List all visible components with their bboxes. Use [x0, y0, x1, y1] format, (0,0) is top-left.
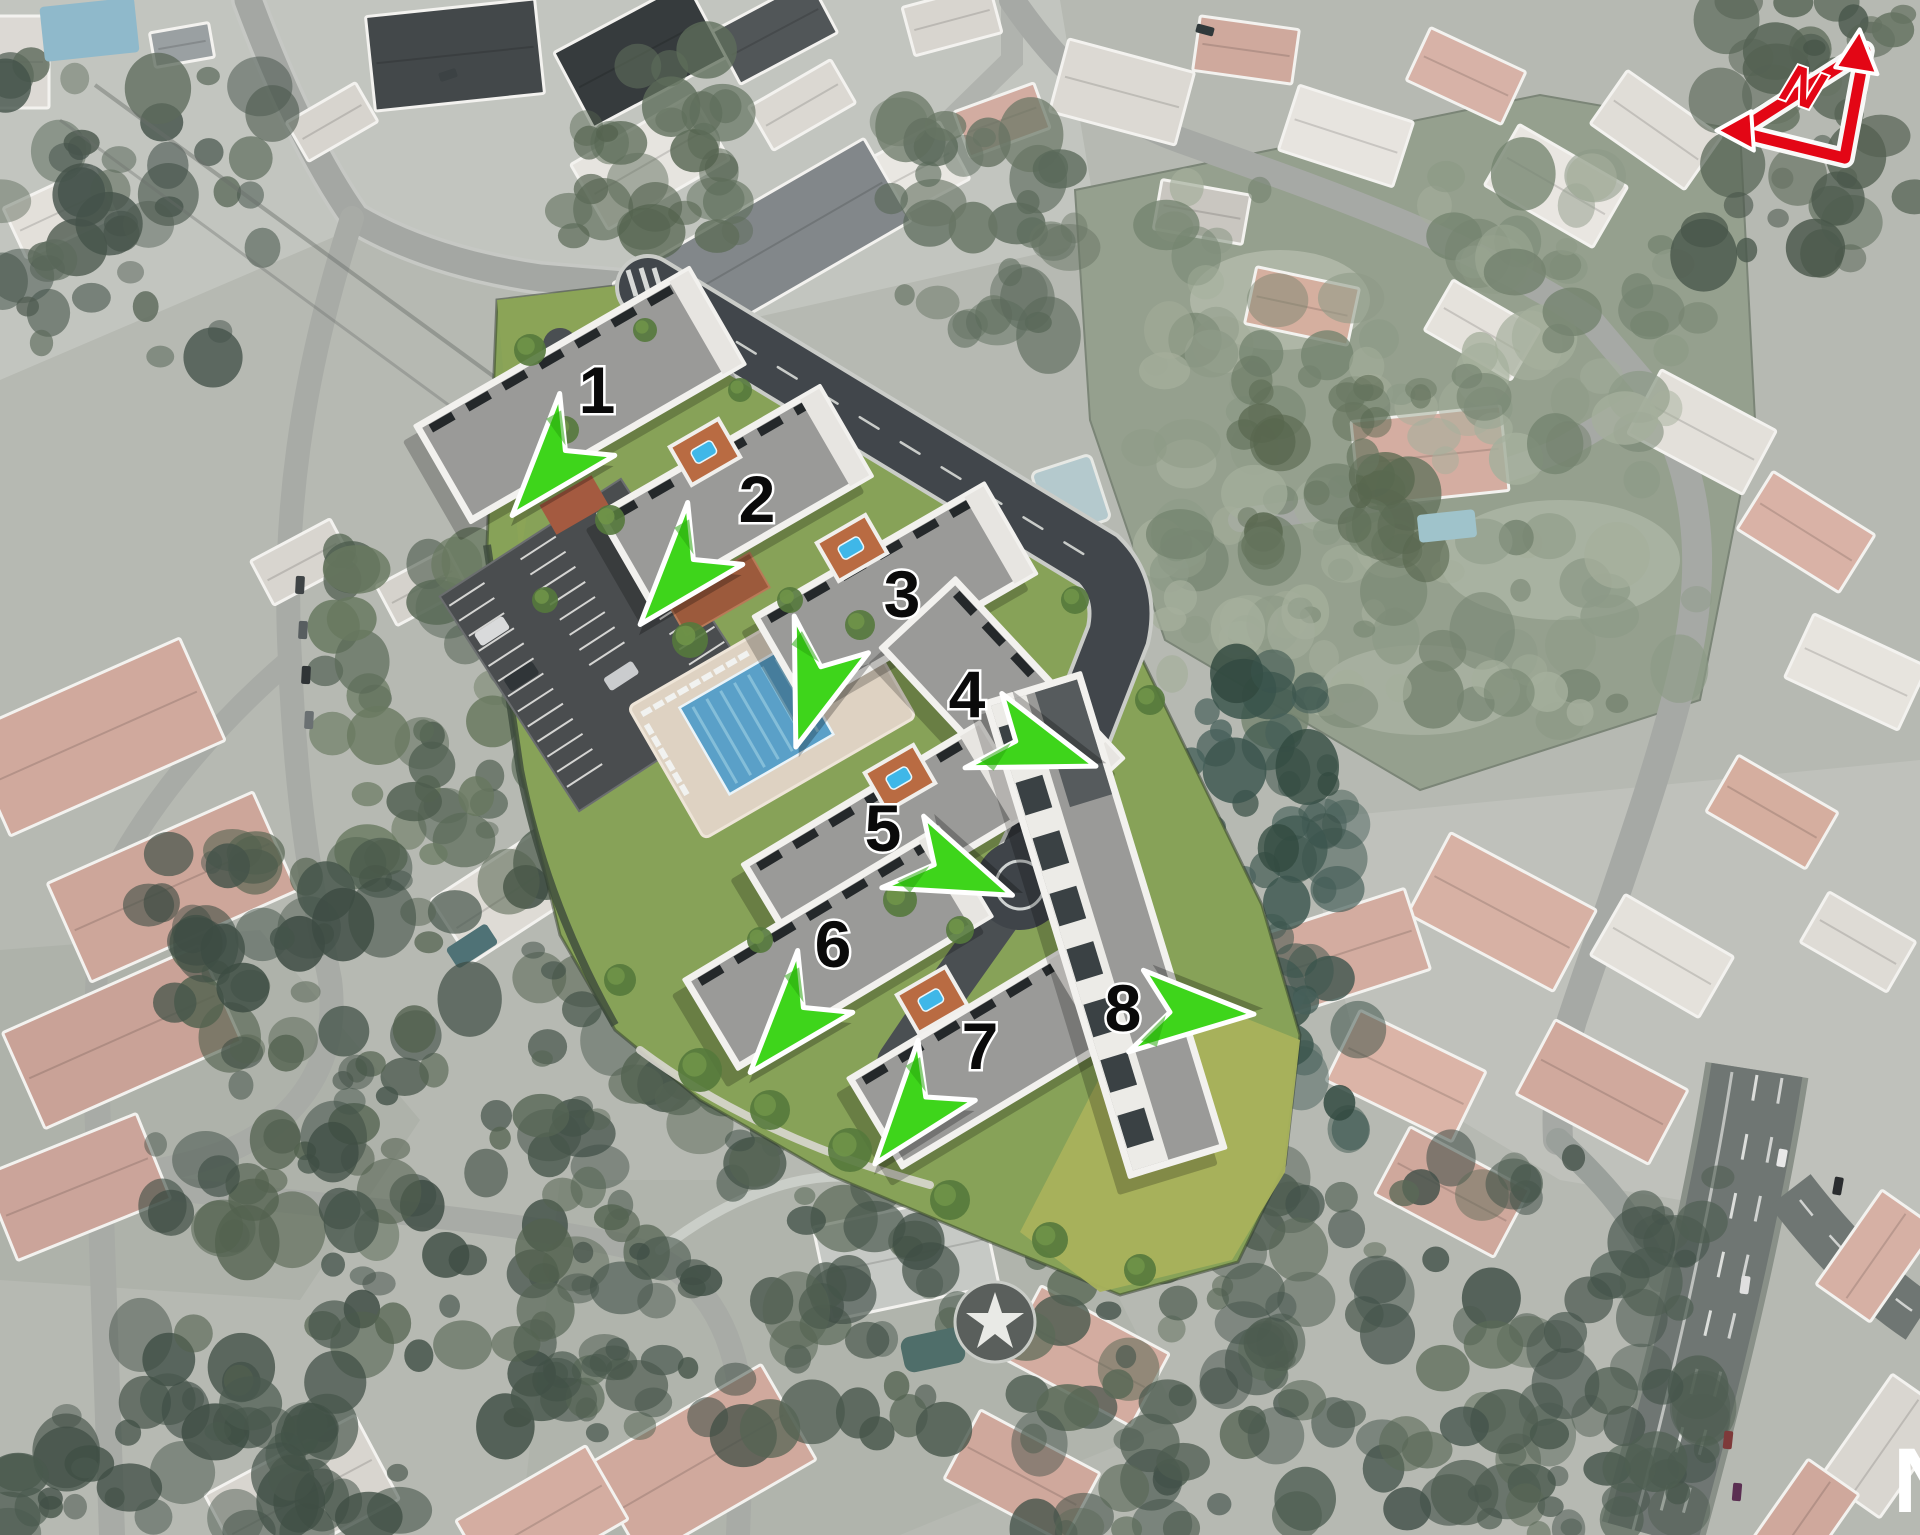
tree — [1653, 334, 1688, 366]
tree — [521, 942, 545, 959]
tree — [1203, 738, 1267, 804]
context-house — [366, 0, 545, 111]
tree — [1098, 1464, 1149, 1512]
tree — [715, 1363, 757, 1396]
tree — [16, 296, 39, 316]
tree — [1676, 1201, 1727, 1244]
tree — [295, 1469, 350, 1532]
neighbor-pool — [39, 0, 139, 62]
satellite-map: 12345678 N N — [0, 0, 1920, 1535]
tree — [794, 1187, 815, 1205]
tree — [1200, 1350, 1253, 1409]
tree — [678, 1357, 698, 1379]
shrub-highlight — [1036, 1226, 1056, 1246]
shrub-highlight — [1127, 1257, 1145, 1275]
tree — [1016, 296, 1081, 373]
tree — [102, 146, 137, 173]
tree — [204, 1422, 231, 1441]
tree — [1556, 238, 1577, 255]
tree — [1318, 273, 1384, 324]
building-number-2: 2 — [739, 462, 776, 536]
tree — [32, 239, 77, 280]
tree — [334, 1088, 366, 1115]
tree — [250, 1109, 300, 1170]
tree — [1328, 382, 1365, 412]
shrub-highlight — [780, 590, 794, 604]
tree — [348, 878, 416, 958]
tree — [386, 782, 441, 821]
car — [304, 711, 314, 729]
tree — [1251, 649, 1295, 693]
tree — [1188, 265, 1225, 299]
tree — [197, 67, 220, 85]
tree — [478, 849, 540, 915]
tree — [458, 776, 494, 816]
tree — [230, 1034, 265, 1063]
tree — [1276, 729, 1339, 805]
tree — [489, 1127, 510, 1150]
tree — [229, 1071, 254, 1100]
tree — [201, 851, 222, 874]
tree — [874, 183, 908, 214]
corner-watermark: N — [1893, 1430, 1920, 1532]
shrub-highlight — [934, 1184, 956, 1206]
tree — [1872, 12, 1914, 47]
tree — [1431, 1460, 1499, 1525]
tree — [1269, 1218, 1328, 1282]
tree — [268, 1035, 304, 1072]
building-number-7: 7 — [962, 1009, 999, 1083]
car — [1732, 1483, 1743, 1502]
tree — [1096, 1301, 1121, 1320]
tree — [571, 1167, 607, 1209]
tree — [859, 1416, 894, 1450]
tree — [1546, 421, 1592, 467]
tree — [71, 1457, 99, 1478]
tree — [323, 545, 391, 594]
tree — [387, 1464, 408, 1482]
tree — [464, 1149, 508, 1198]
shrub-highlight — [1064, 589, 1079, 604]
shrub-highlight — [635, 320, 648, 333]
tree — [528, 1132, 571, 1177]
shrub-highlight — [848, 613, 865, 630]
tree — [72, 283, 111, 313]
tree — [608, 1064, 663, 1103]
tree — [115, 1419, 141, 1445]
tree — [1724, 192, 1754, 218]
shrub-highlight — [754, 1094, 776, 1116]
tree — [338, 1055, 374, 1090]
tree — [924, 111, 966, 141]
tree — [393, 1005, 436, 1052]
tree — [63, 1494, 87, 1520]
tree — [1767, 209, 1788, 228]
shrub-highlight — [682, 1052, 706, 1076]
tree — [1410, 384, 1431, 408]
tree — [573, 1242, 593, 1263]
tree — [419, 843, 447, 865]
tree — [1419, 630, 1466, 672]
tree — [1298, 802, 1326, 822]
building-number-4: 4 — [949, 657, 986, 731]
tree — [1349, 483, 1372, 508]
tree — [1146, 509, 1214, 559]
car — [298, 621, 308, 639]
tree — [1567, 153, 1617, 201]
tree — [1786, 219, 1845, 278]
tree — [117, 261, 144, 284]
tree — [1670, 219, 1737, 292]
tree — [594, 1204, 629, 1230]
car — [295, 576, 305, 594]
tree — [1263, 876, 1310, 930]
tree — [787, 1206, 826, 1235]
tree — [1121, 429, 1166, 466]
tree — [676, 21, 737, 78]
tree — [1510, 579, 1531, 602]
tree — [381, 1138, 410, 1160]
tree — [235, 908, 290, 962]
tree — [866, 1321, 898, 1357]
tree — [1547, 1466, 1568, 1486]
tree — [1325, 1182, 1358, 1213]
tree — [1592, 391, 1659, 445]
tree — [1440, 1407, 1489, 1447]
tree — [413, 720, 434, 742]
tree — [1248, 177, 1271, 204]
tree — [1156, 655, 1188, 693]
tree — [123, 201, 174, 248]
tree — [133, 291, 159, 322]
tree — [703, 179, 754, 224]
tree — [191, 1200, 255, 1257]
tree — [1491, 137, 1556, 210]
tree — [1618, 284, 1684, 336]
tree — [532, 1358, 581, 1402]
tree — [1389, 1180, 1419, 1206]
tree — [245, 85, 299, 142]
tree — [153, 982, 197, 1022]
tree — [1403, 660, 1464, 728]
tree — [1484, 669, 1535, 717]
tree — [1354, 1260, 1415, 1327]
tree — [375, 1302, 411, 1344]
star-driveway — [955, 1282, 1035, 1362]
tree — [1238, 403, 1284, 443]
tree — [1298, 365, 1321, 388]
tree — [1309, 640, 1339, 676]
tree — [966, 117, 1011, 167]
tree — [324, 1190, 379, 1253]
tree — [476, 822, 499, 839]
shrub-highlight — [832, 1132, 856, 1156]
tree — [245, 228, 281, 268]
tree — [1422, 1247, 1449, 1273]
tree — [1701, 1166, 1734, 1189]
tree — [915, 161, 941, 187]
tree — [1113, 1428, 1144, 1451]
tree — [1541, 250, 1581, 280]
building-number-3: 3 — [884, 557, 921, 631]
tree — [572, 1275, 598, 1295]
tree — [916, 286, 960, 320]
tree — [409, 742, 456, 789]
tree — [1159, 1286, 1198, 1321]
tree — [1311, 866, 1365, 912]
tree — [949, 202, 998, 254]
tree — [308, 1300, 360, 1348]
tree — [1033, 149, 1087, 188]
tree — [515, 1218, 574, 1283]
tree — [948, 310, 982, 348]
tree — [590, 1346, 638, 1381]
tree — [1736, 238, 1757, 263]
tree — [1584, 522, 1650, 588]
tree — [146, 346, 174, 368]
tree — [1258, 824, 1299, 872]
tree — [347, 706, 410, 765]
tree — [1304, 480, 1330, 505]
tree — [725, 1129, 755, 1151]
tree — [619, 204, 686, 260]
tree — [1265, 1292, 1296, 1322]
tree — [38, 1487, 63, 1509]
tree — [785, 1345, 811, 1374]
tree — [584, 1108, 610, 1130]
tree — [275, 1402, 338, 1471]
tree — [895, 284, 915, 305]
tree — [1386, 674, 1412, 702]
tree — [172, 905, 213, 953]
tree — [1029, 221, 1072, 256]
tree — [404, 1339, 433, 1372]
tree — [1562, 1144, 1585, 1171]
tree — [352, 782, 384, 806]
tree — [148, 1190, 194, 1236]
shrub-highlight — [676, 626, 696, 646]
tree — [58, 167, 105, 217]
shrub-highlight — [598, 508, 615, 525]
car — [301, 666, 311, 684]
shrub-highlight — [607, 967, 625, 985]
tree — [1285, 1185, 1324, 1223]
tree — [183, 327, 242, 387]
building-number-1: 1 — [579, 353, 616, 427]
tree — [1292, 672, 1328, 710]
tree — [532, 1050, 553, 1066]
car — [1723, 1431, 1734, 1450]
tree — [307, 1122, 359, 1182]
tree — [1116, 1345, 1136, 1368]
tree — [1330, 1001, 1386, 1059]
tree — [1427, 161, 1465, 192]
tree — [144, 883, 180, 922]
tree — [1498, 1152, 1532, 1191]
tree — [1416, 1345, 1470, 1392]
tree — [763, 1271, 830, 1349]
tree — [637, 1283, 676, 1319]
aerial-site-plan: 12345678 N N — [0, 0, 1920, 1535]
building-number-6: 6 — [815, 907, 852, 981]
tree — [596, 124, 618, 142]
tree — [321, 1253, 345, 1277]
tree — [439, 1295, 460, 1318]
tree — [1811, 172, 1864, 226]
tree — [52, 1404, 82, 1428]
building-number-5: 5 — [865, 791, 902, 865]
tree — [318, 1006, 369, 1057]
tree — [1164, 580, 1197, 615]
tree — [414, 931, 443, 953]
tree — [30, 330, 53, 356]
tree — [1156, 1443, 1210, 1481]
tree — [1379, 1416, 1433, 1471]
tree — [1328, 1209, 1365, 1248]
tree — [1526, 1320, 1584, 1379]
tree — [1347, 438, 1380, 475]
tree — [884, 1371, 909, 1401]
tree — [740, 1399, 800, 1458]
tree — [1642, 1369, 1684, 1405]
tree — [1607, 1206, 1675, 1278]
tree — [1327, 1400, 1366, 1428]
tree — [1452, 364, 1483, 389]
building-number-8: 8 — [1105, 971, 1142, 1045]
tree — [135, 1499, 173, 1535]
tree — [60, 63, 89, 95]
tree — [376, 1086, 398, 1105]
tree — [1681, 586, 1712, 612]
tree — [1241, 526, 1285, 565]
tree — [216, 963, 269, 1013]
tree — [144, 832, 194, 876]
tree — [174, 1314, 213, 1352]
tree — [1144, 301, 1194, 359]
tree — [1288, 597, 1313, 619]
tree — [1567, 699, 1594, 726]
shrub-highlight — [535, 590, 549, 604]
shrub-highlight — [949, 919, 964, 934]
tree — [642, 76, 700, 137]
tree — [695, 219, 740, 253]
tree — [291, 981, 321, 1002]
tree — [545, 193, 592, 229]
tree — [902, 1242, 959, 1297]
shrub-highlight — [517, 337, 535, 355]
tree — [1025, 312, 1052, 333]
shrub-highlight — [1138, 688, 1155, 705]
tree — [1602, 1443, 1655, 1492]
tree — [916, 1402, 972, 1457]
tree — [1207, 1493, 1231, 1515]
tree — [1324, 1085, 1356, 1121]
tree — [327, 597, 377, 641]
tree — [517, 1281, 575, 1339]
tree — [1210, 719, 1232, 742]
tree — [1803, 40, 1826, 56]
tree — [1238, 1406, 1266, 1434]
tree — [438, 961, 502, 1036]
tree — [586, 1423, 609, 1442]
tree — [350, 1266, 376, 1285]
tree — [144, 1132, 167, 1156]
tree — [1102, 1369, 1133, 1399]
tree — [219, 1376, 282, 1430]
context-house — [1193, 16, 1300, 84]
tree — [1623, 461, 1660, 499]
tree — [629, 1243, 650, 1260]
tree — [1353, 621, 1375, 638]
tree — [1650, 634, 1708, 703]
tree — [172, 1131, 239, 1189]
tree — [229, 136, 273, 180]
tree — [1484, 249, 1546, 296]
tree — [1244, 1317, 1298, 1368]
tree — [614, 44, 661, 89]
tree — [870, 98, 928, 147]
tree — [1292, 988, 1319, 1014]
tree — [1543, 287, 1602, 336]
shrub-highlight — [750, 930, 764, 944]
tree — [433, 1320, 492, 1369]
tree — [481, 1100, 512, 1132]
tree — [1011, 1410, 1067, 1476]
tree — [449, 1245, 487, 1276]
shrub-highlight — [730, 380, 743, 393]
tree — [513, 1094, 570, 1138]
tree — [1247, 273, 1309, 327]
tree — [1249, 379, 1274, 404]
tree — [1606, 694, 1629, 713]
tree — [541, 961, 566, 979]
